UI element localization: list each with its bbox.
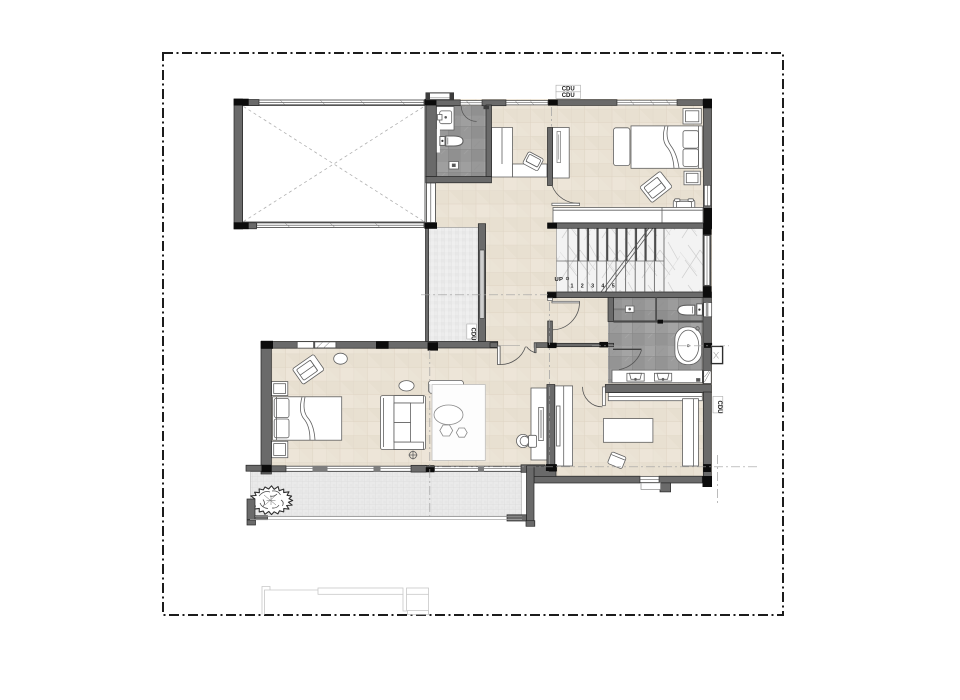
svg-text:4: 4 [601,284,604,290]
svg-text:CDU: CDU [562,93,575,99]
svg-text:1: 1 [571,284,574,290]
svg-text:5: 5 [612,284,615,290]
svg-text:2: 2 [581,284,584,290]
svg-text:CDU: CDU [470,328,476,341]
svg-text:CDU: CDU [716,400,722,413]
svg-text:3: 3 [591,284,594,290]
svg-text:UP: UP [555,277,564,283]
